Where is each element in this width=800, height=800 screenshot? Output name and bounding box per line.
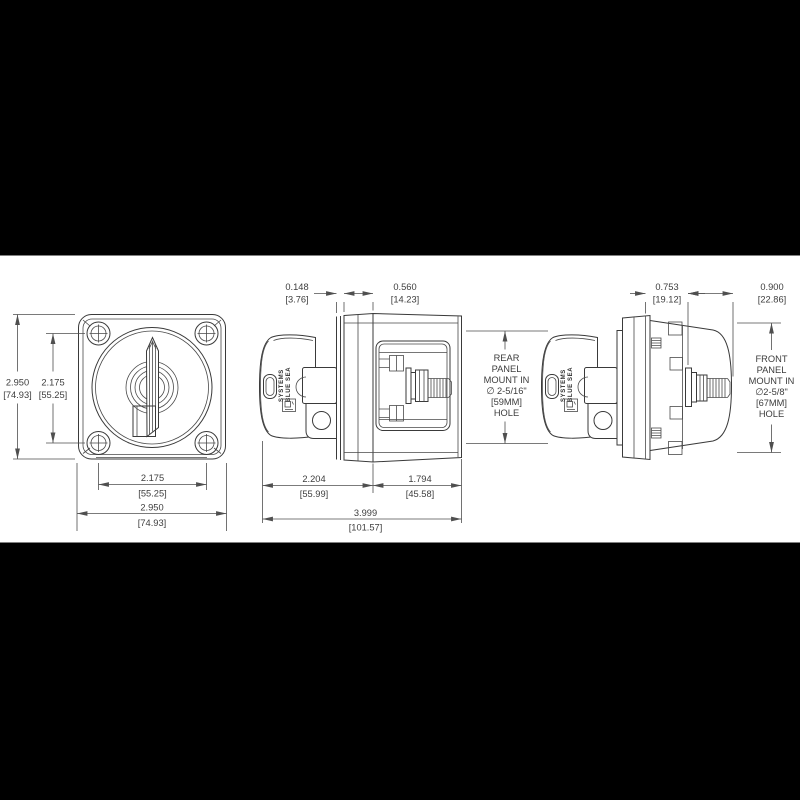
- note-line: MOUNT IN: [749, 376, 795, 386]
- dim-front-width-mm: [74.93]: [138, 518, 166, 528]
- note-line: [59MM]: [491, 397, 522, 407]
- dim-flange-to-nut-in: 0.753: [655, 282, 678, 292]
- dim-stud-length-in: 0.900: [760, 282, 783, 292]
- note-line: HOLE: [494, 408, 519, 418]
- note-line: [67MM]: [756, 398, 787, 408]
- dim-panel-lip-mm: [3.76]: [285, 295, 308, 305]
- dim-panel-lip-in: 0.148: [285, 282, 308, 292]
- note-line: PANEL: [492, 364, 522, 374]
- knob-bracket: [588, 404, 617, 439]
- dim-front-width-in: 2.950: [140, 503, 163, 513]
- dim-overall-depth-mm: [101.57]: [349, 523, 383, 533]
- knob-brand-text2: SYSTEMS: [279, 369, 285, 402]
- note-line: REAR: [494, 353, 520, 363]
- dim-hole-spacing-v-in: 2.175: [41, 378, 64, 388]
- screw-icon: [195, 322, 218, 345]
- screw-icon: [87, 322, 110, 345]
- dim-flange-depth-mm: [14.23]: [391, 295, 419, 305]
- knob-lever: [147, 338, 159, 437]
- knob-brand-text: BLUE SEA: [286, 367, 292, 402]
- dim-flange-to-stud-in: 1.794: [408, 474, 431, 484]
- dim-hole-spacing-v-mm: [55.25]: [39, 390, 67, 400]
- drawing-canvas: 2.950 [74.93] 2.175 [55.25] 2.175 [55.25…: [0, 0, 800, 800]
- switch-body-side: [623, 316, 732, 460]
- dim-knob-to-flange-in: 2.204: [302, 474, 325, 484]
- note-line: FRONT: [755, 354, 787, 364]
- knob-brand-text: BLUE SEA: [568, 367, 574, 402]
- note-line: ∅2-5/8": [755, 387, 788, 397]
- front-mount-side-view: BLUE SEA SYSTEMS: [542, 316, 732, 460]
- front-face-flange: [344, 314, 373, 463]
- note-line: ∅ 2-5/16": [486, 386, 526, 396]
- screw-icon: [195, 432, 218, 455]
- dim-stud-length-mm: [22.86]: [758, 295, 786, 305]
- knob-brand-text2: SYSTEMS: [561, 369, 567, 402]
- dim-overall-depth-in: 3.999: [354, 508, 377, 518]
- screw-icon: [87, 432, 110, 455]
- dim-flange-to-stud-mm: [45.58]: [406, 489, 434, 499]
- technical-drawing: 2.950 [74.93] 2.175 [55.25] 2.175 [55.25…: [0, 0, 800, 800]
- note-line: PANEL: [757, 365, 787, 375]
- switch-body-side: [337, 314, 462, 463]
- mounting-panel-section: [617, 331, 623, 446]
- note-line: HOLE: [759, 409, 784, 419]
- dim-front-height-in: 2.950: [6, 378, 29, 388]
- dim-flange-to-nut-mm: [19.12]: [653, 295, 681, 305]
- note-line: MOUNT IN: [484, 375, 530, 385]
- dim-knob-to-flange-mm: [55.99]: [300, 489, 328, 499]
- dim-flange-depth-in: 0.560: [393, 282, 416, 292]
- dim-front-height-mm: [74.93]: [3, 390, 31, 400]
- dim-hole-spacing-h-mm: [55.25]: [138, 489, 166, 499]
- dim-hole-spacing-h-in: 2.175: [141, 473, 164, 483]
- knob-bracket: [306, 404, 337, 439]
